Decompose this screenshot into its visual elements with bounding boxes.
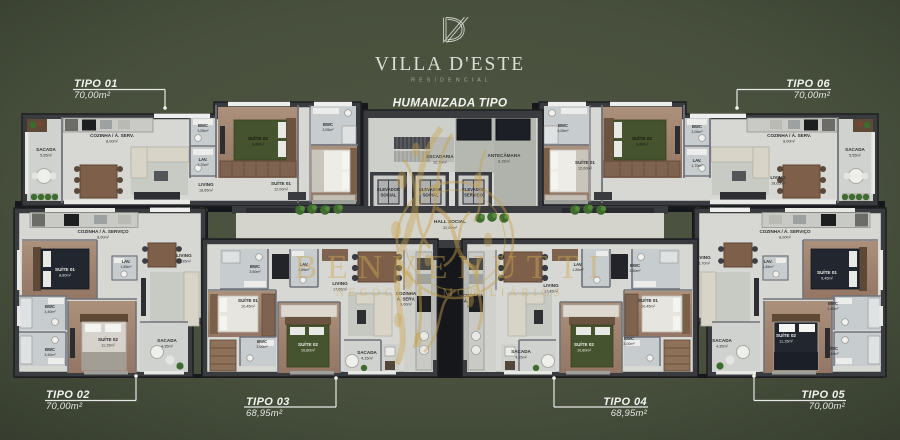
- svg-text:SACADA: SACADA: [712, 338, 732, 343]
- svg-text:TIPO 06: TIPO 06: [786, 78, 830, 90]
- svg-text:3,40m²: 3,40m²: [44, 310, 56, 314]
- svg-text:11,15m²: 11,15m²: [101, 344, 115, 348]
- svg-text:R E S I D E N C I A L: R E S I D E N C I A L: [411, 78, 489, 84]
- svg-text:8,00m²: 8,00m²: [97, 236, 110, 240]
- svg-text:BWC: BWC: [828, 301, 838, 306]
- svg-text:BWC: BWC: [45, 347, 55, 352]
- svg-text:68,95m²: 68,95m²: [611, 408, 648, 419]
- svg-text:SUÍTE 02: SUÍTE 02: [298, 340, 318, 347]
- svg-text:LIVING: LIVING: [198, 182, 214, 187]
- svg-text:8,80m²: 8,80m²: [59, 274, 72, 278]
- svg-text:3,05m²: 3,05m²: [197, 129, 209, 133]
- svg-text:LAV.: LAV.: [122, 259, 131, 264]
- svg-text:SACADA: SACADA: [511, 349, 531, 354]
- svg-text:3,05m²: 3,05m²: [322, 128, 334, 132]
- svg-text:3,40m²: 3,40m²: [827, 307, 839, 311]
- svg-text:BWC: BWC: [828, 346, 838, 351]
- svg-text:6,15m²: 6,15m²: [498, 160, 511, 164]
- svg-text:SACADA: SACADA: [845, 147, 865, 152]
- svg-text:1,70m²: 1,70m²: [691, 164, 703, 168]
- svg-text:10,80m²: 10,80m²: [577, 349, 592, 353]
- svg-text:SUÍTE 01: SUÍTE 01: [817, 268, 837, 275]
- svg-text:70,00m²: 70,00m²: [809, 401, 846, 412]
- svg-text:1,70m²: 1,70m²: [197, 163, 209, 167]
- svg-text:ANTECÂMARA: ANTECÂMARA: [488, 152, 522, 158]
- svg-text:3,50m²: 3,50m²: [249, 270, 261, 274]
- svg-text:10,80m²: 10,80m²: [301, 349, 316, 353]
- svg-text:12,00m²: 12,00m²: [274, 188, 289, 192]
- svg-text:LAV.: LAV.: [199, 157, 208, 162]
- svg-text:SUÍTE 02: SUÍTE 02: [632, 134, 652, 141]
- svg-text:10,45m²: 10,45m²: [641, 305, 656, 309]
- svg-text:COZINHA / Á. SERV.: COZINHA / Á. SERV.: [767, 132, 811, 138]
- svg-text:TIPO 04: TIPO 04: [603, 396, 647, 408]
- svg-text:SUÍTE 02: SUÍTE 02: [574, 340, 594, 347]
- svg-text:BWC: BWC: [692, 124, 702, 129]
- svg-text:COZINHA / Á. SERV.: COZINHA / Á. SERV.: [90, 132, 134, 138]
- svg-text:18,65m²: 18,65m²: [199, 189, 214, 193]
- svg-text:BWC: BWC: [323, 122, 333, 127]
- svg-text:SACADA: SACADA: [36, 147, 56, 152]
- svg-text:SUÍTE 02: SUÍTE 02: [776, 331, 796, 338]
- svg-text:3,00m²: 3,00m²: [623, 342, 635, 346]
- svg-text:BWC: BWC: [198, 123, 208, 128]
- svg-text:17,35m²: 17,35m²: [177, 260, 192, 264]
- svg-text:LAV.: LAV.: [693, 158, 702, 163]
- svg-text:LIVING: LIVING: [176, 253, 192, 258]
- svg-text:BWC: BWC: [630, 263, 640, 268]
- svg-text:4,35m²: 4,35m²: [716, 345, 729, 349]
- svg-text:4,35m²: 4,35m²: [161, 345, 174, 349]
- svg-text:8,00m²: 8,00m²: [779, 236, 792, 240]
- svg-text:SUÍTE 01: SUÍTE 01: [238, 296, 258, 303]
- svg-text:10,45m²: 10,45m²: [241, 305, 256, 309]
- svg-text:8,80m²: 8,80m²: [636, 143, 649, 147]
- svg-text:5,55m²: 5,55m²: [849, 154, 862, 158]
- svg-text:VILLA D'ESTE: VILLA D'ESTE: [375, 54, 525, 75]
- svg-text:8,00m²: 8,00m²: [783, 140, 796, 144]
- svg-text:70,00m²: 70,00m²: [794, 90, 831, 101]
- svg-text:SOCIAL: SOCIAL: [381, 192, 397, 197]
- svg-text:3,05m²: 3,05m²: [557, 129, 569, 133]
- svg-text:18,65m²: 18,65m²: [771, 182, 786, 186]
- svg-text:70,00m²: 70,00m²: [74, 90, 111, 101]
- svg-text:SUÍTE 02: SUÍTE 02: [98, 335, 118, 342]
- svg-text:5,55m²: 5,55m²: [40, 154, 53, 158]
- svg-text:TIPO 05: TIPO 05: [801, 389, 845, 401]
- svg-text:BWC: BWC: [624, 336, 634, 341]
- svg-text:SUÍTE 01: SUÍTE 01: [55, 265, 75, 272]
- svg-text:9,45m²: 9,45m²: [821, 277, 834, 281]
- svg-text:3,40m²: 3,40m²: [44, 353, 56, 357]
- svg-text:SACADA: SACADA: [357, 350, 377, 355]
- svg-text:8,80m²: 8,80m²: [252, 143, 265, 147]
- svg-text:SUÍTE 01: SUÍTE 01: [638, 296, 658, 303]
- svg-text:LIVING: LIVING: [770, 175, 786, 180]
- svg-text:68,95m²: 68,95m²: [246, 408, 283, 419]
- svg-text:HUMANIZADA TIPO: HUMANIZADA TIPO: [393, 96, 508, 110]
- svg-text:COZINHA / Á. SERVIÇO: COZINHA / Á. SERVIÇO: [759, 228, 810, 234]
- svg-text:3,00m²: 3,00m²: [256, 345, 268, 349]
- svg-text:COZINHA / Á. SERVIÇO: COZINHA / Á. SERVIÇO: [77, 228, 128, 234]
- svg-text:TIPO 01: TIPO 01: [74, 78, 118, 90]
- svg-text:12,00m²: 12,00m²: [578, 167, 593, 171]
- svg-text:3,50m²: 3,50m²: [629, 269, 641, 273]
- svg-text:SUÍTE 01: SUÍTE 01: [271, 179, 291, 186]
- svg-text:3,05m²: 3,05m²: [691, 130, 703, 134]
- svg-text:ELEVADOR: ELEVADOR: [377, 187, 400, 192]
- svg-text:NEGÓCIOS IMOBILIÁRIOS: NEGÓCIOS IMOBILIÁRIOS: [336, 285, 564, 299]
- svg-text:BWC: BWC: [45, 304, 55, 309]
- svg-text:BENVENUTTI: BENVENUTTI: [294, 249, 609, 286]
- svg-text:1,85m²: 1,85m²: [762, 265, 774, 269]
- svg-text:TIPO 02: TIPO 02: [46, 389, 90, 401]
- svg-text:1,85m²: 1,85m²: [120, 265, 132, 269]
- svg-text:TIPO 03: TIPO 03: [246, 396, 290, 408]
- svg-text:BWC: BWC: [257, 339, 267, 344]
- svg-text:8,00m²: 8,00m²: [106, 140, 119, 144]
- svg-text:SACADA: SACADA: [157, 338, 177, 343]
- svg-text:4,15m²: 4,15m²: [361, 357, 374, 361]
- svg-text:3,40m²: 3,40m²: [827, 352, 839, 356]
- svg-text:70,00m²: 70,00m²: [46, 401, 83, 412]
- svg-text:BWC: BWC: [558, 123, 568, 128]
- svg-text:4,15m²: 4,15m²: [515, 356, 528, 360]
- svg-text:11,15m²: 11,15m²: [779, 340, 793, 344]
- svg-text:SUÍTE 02: SUÍTE 02: [248, 134, 268, 141]
- svg-text:BWC: BWC: [250, 264, 260, 269]
- svg-text:LAV.: LAV.: [764, 259, 773, 264]
- svg-text:SUÍTE 01: SUÍTE 01: [575, 158, 595, 165]
